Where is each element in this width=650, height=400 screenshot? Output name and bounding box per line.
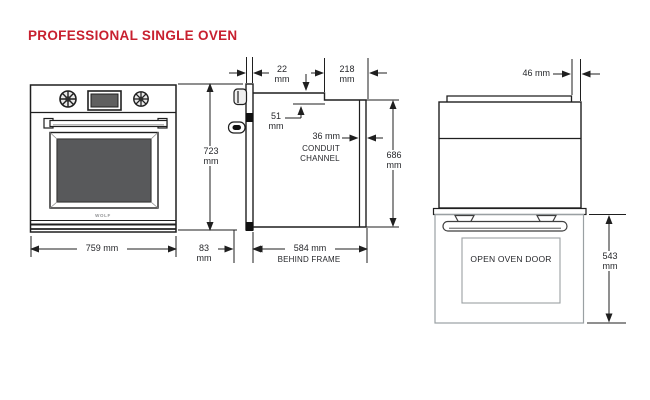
open-oven-door-label: OPEN OVEN DOOR xyxy=(462,253,560,266)
conduit-channel-label-1: CONDUIT xyxy=(297,144,345,153)
dim-label-543: 543mm xyxy=(595,251,625,271)
dim-label-36: 36 mm xyxy=(298,131,340,141)
dim-label-51: 51mm xyxy=(262,111,290,131)
dim-label-218: 218mm xyxy=(333,64,361,84)
dim-label-46: 46 mm xyxy=(502,68,550,78)
oven-knob-right-icon xyxy=(134,92,148,106)
dim-83 xyxy=(218,230,270,263)
dim-label-686: 686mm xyxy=(379,150,409,170)
dim-46 xyxy=(553,59,600,101)
side-handle-icon xyxy=(229,122,246,133)
oven-door-window xyxy=(50,133,158,209)
dim-label-723: 723mm xyxy=(195,146,227,166)
dim-label-759: 759 mm xyxy=(77,243,127,253)
dim-22 xyxy=(229,57,269,83)
dim-label-83: 83mm xyxy=(192,243,216,263)
dim-label-22: 22mm xyxy=(269,64,295,84)
open-door-handle xyxy=(443,216,567,232)
conduit-channel-label-2: CHANNEL xyxy=(296,154,344,163)
side-knob-icon xyxy=(234,89,247,105)
diagram-linework xyxy=(0,0,650,400)
dim-label-behind-frame: BEHIND FRAME xyxy=(270,255,348,264)
oven-knob-left-icon xyxy=(60,91,76,107)
oven-handle xyxy=(44,119,167,129)
open-door-view xyxy=(434,96,587,323)
brand-logo: WOLF xyxy=(90,212,116,219)
front-view xyxy=(31,85,177,232)
spec-diagram: PROFESSIONAL SINGLE OVEN xyxy=(0,0,650,400)
oven-display xyxy=(88,91,121,110)
dim-label-584: 584 mm xyxy=(285,243,335,253)
